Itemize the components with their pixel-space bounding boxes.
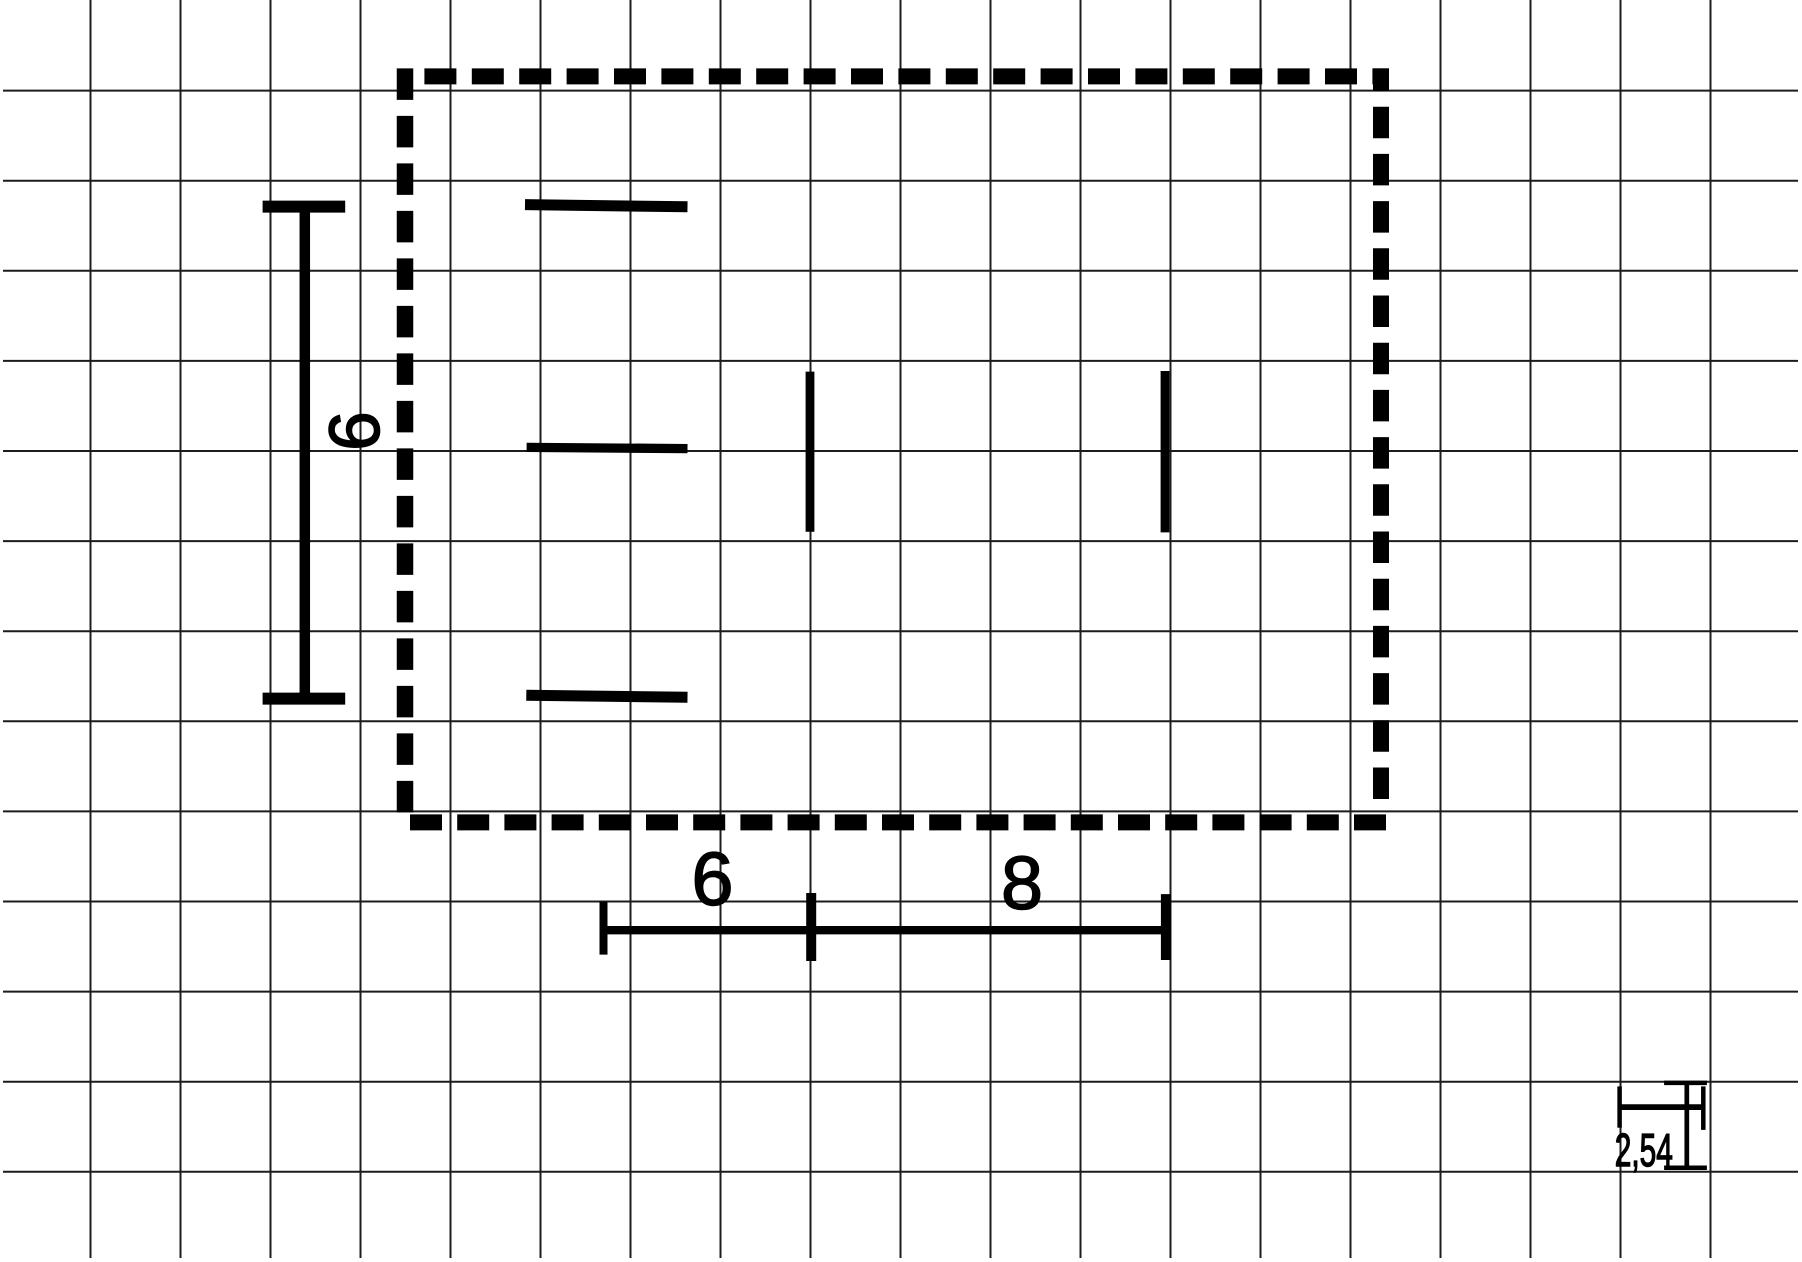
svg-text:9: 9 [314, 411, 393, 451]
svg-text:6: 6 [692, 837, 734, 921]
svg-text:2,54: 2,54 [1615, 1126, 1673, 1177]
svg-text:8: 8 [1001, 841, 1043, 925]
